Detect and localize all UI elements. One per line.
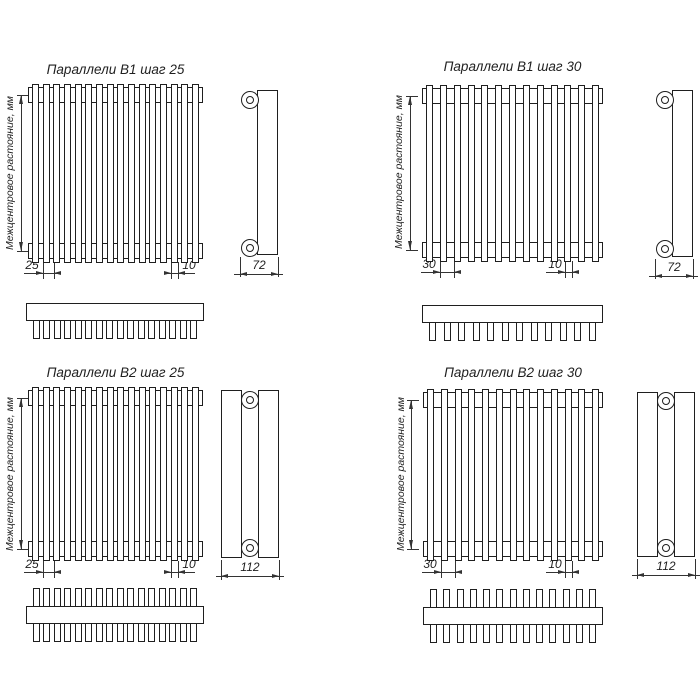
side-column <box>637 392 658 557</box>
tube-top-view <box>138 622 145 642</box>
tube-top-view <box>536 623 543 643</box>
tube-top-view <box>190 622 197 642</box>
collector-bar <box>26 606 204 624</box>
tube-top-view <box>148 588 155 608</box>
tube-top-view <box>496 623 503 643</box>
tube-top-view <box>429 321 436 341</box>
tube-top-view <box>574 321 581 341</box>
radiator-tube <box>578 85 585 262</box>
connection-port-icon <box>657 392 675 410</box>
radiator-tube <box>592 389 599 561</box>
depth-label: 112 <box>648 560 684 573</box>
radiator-tube <box>192 387 199 561</box>
tube-top-view <box>470 623 477 643</box>
radiator-top-view <box>26 606 204 624</box>
radiator-tube <box>510 389 517 561</box>
dim-arrow <box>637 573 644 577</box>
dim-arrow <box>409 540 413 549</box>
tube-top-view <box>106 319 113 339</box>
radiator-tube <box>496 389 503 561</box>
tube-top-view <box>180 319 187 339</box>
tube-top-view <box>54 319 61 339</box>
tube-top-view <box>536 589 543 609</box>
tube-top-view <box>589 623 596 643</box>
radiator-tube <box>468 389 475 561</box>
tube-top-view <box>516 321 523 341</box>
tube-top-view <box>127 319 134 339</box>
radiator-tube <box>117 387 124 561</box>
tube-top-view <box>75 319 82 339</box>
tube-top-view <box>576 623 583 643</box>
technical-drawing: Параллели B1 шаг 25 Межцентровое растоян… <box>0 0 700 700</box>
tube-top-view <box>33 319 40 339</box>
ext-line <box>565 561 566 578</box>
radiator-tube <box>481 85 488 262</box>
radiator-tube <box>160 387 167 561</box>
tube-top-view <box>487 321 494 341</box>
radiator-tube <box>551 389 558 561</box>
tube-top-view <box>117 622 124 642</box>
tube-top-view <box>148 319 155 339</box>
dim-arrow <box>455 570 462 574</box>
radiator-tube <box>117 84 124 263</box>
tube-top-view <box>159 588 166 608</box>
tube-top-view <box>64 319 71 339</box>
ext-line <box>695 559 696 579</box>
tube-top-view <box>117 588 124 608</box>
radiator-tube <box>32 84 39 263</box>
tube-top-view <box>117 319 124 339</box>
radiator-tube <box>564 85 571 262</box>
tube-top-view <box>85 622 92 642</box>
tube-top-view <box>64 622 71 642</box>
tube-top-view <box>483 623 490 643</box>
tube-top-view <box>169 622 176 642</box>
radiator-tube <box>537 389 544 561</box>
radiator-tube <box>427 389 434 561</box>
tube-top-view <box>430 623 437 643</box>
radiator-tube <box>53 84 60 263</box>
radiator-tube <box>468 85 475 262</box>
tube-top-view <box>96 622 103 642</box>
dim-arrow <box>688 573 695 577</box>
tube-top-view <box>549 589 556 609</box>
tube-top-view <box>75 622 82 642</box>
tube-top-view <box>496 589 503 609</box>
tube-top-view <box>502 321 509 341</box>
radiator-side-view <box>637 392 695 557</box>
tube-top-view <box>138 588 145 608</box>
radiator-tube <box>181 84 188 263</box>
radiator-tube <box>139 84 146 263</box>
center-distance-label: Межцентровое растояние, мм <box>393 394 409 554</box>
tube-top-view <box>159 622 166 642</box>
radiator-tube <box>509 85 516 262</box>
tube-top-view <box>180 588 187 608</box>
tube-top-view <box>96 319 103 339</box>
radiator-tube <box>64 84 71 263</box>
radiator-tube <box>537 85 544 262</box>
tube-top-view <box>33 622 40 642</box>
tube-top-view <box>33 588 40 608</box>
radiator-tube <box>565 389 572 561</box>
collector-bar <box>422 305 603 323</box>
tube-top-view <box>563 623 570 643</box>
tube-top-view <box>190 588 197 608</box>
tube-top-view <box>457 589 464 609</box>
tube-top-view <box>457 623 464 643</box>
radiator-tube <box>441 389 448 561</box>
radiator-tube <box>75 84 82 263</box>
tube-top-view <box>127 622 134 642</box>
radiator-tube <box>149 387 156 561</box>
radiator-tube <box>139 387 146 561</box>
tube-top-view <box>96 588 103 608</box>
tube-top-view <box>127 588 134 608</box>
radiator-tube <box>85 84 92 263</box>
tube-top-view <box>483 589 490 609</box>
radiator-tube <box>85 387 92 561</box>
tube-top-view <box>443 589 450 609</box>
radiator-tube <box>181 387 188 561</box>
tube-top-view <box>180 622 187 642</box>
connection-port-icon <box>241 391 259 409</box>
radiator-tube <box>128 84 135 263</box>
radiator-tube <box>43 387 50 561</box>
tube-top-view <box>510 589 517 609</box>
tube-top-view <box>523 623 530 643</box>
connection-port-icon <box>656 240 674 258</box>
tube-top-view <box>54 588 61 608</box>
radiator-tube <box>495 85 502 262</box>
radiator-tube <box>64 387 71 561</box>
tube-top-view <box>473 321 480 341</box>
radiator-tube <box>578 389 585 561</box>
tube-top-view <box>531 321 538 341</box>
radiator-tube <box>128 387 135 561</box>
tube-top-view <box>148 622 155 642</box>
collector-bar <box>26 303 204 321</box>
radiator-tube <box>96 84 103 263</box>
tube-top-view <box>563 589 570 609</box>
radiator-tube <box>192 84 199 263</box>
connection-port-icon <box>241 239 259 257</box>
tube-top-view <box>43 319 50 339</box>
dim-arrow <box>409 400 413 409</box>
radiator-tube <box>32 387 39 561</box>
tube-top-view <box>576 589 583 609</box>
tube-top-view <box>169 588 176 608</box>
tube-top-view <box>443 623 450 643</box>
tube-top-view <box>43 622 50 642</box>
tube-top-view <box>510 623 517 643</box>
radiator-tube <box>523 85 530 262</box>
ext-line <box>441 561 442 578</box>
radiator-tube <box>107 387 114 561</box>
tube-top-view <box>106 588 113 608</box>
tube-top-view <box>190 319 197 339</box>
radiator-tube <box>482 389 489 561</box>
tube-top-view <box>138 319 145 339</box>
tube-top-view <box>444 321 451 341</box>
tube-top-view <box>560 321 567 341</box>
radiator-tube <box>75 387 82 561</box>
tube-top-view <box>470 589 477 609</box>
tube-top-view <box>159 319 166 339</box>
dim-arrow <box>572 570 579 574</box>
radiator-tube <box>592 85 599 262</box>
radiator-tube <box>171 84 178 263</box>
side-column <box>674 392 695 557</box>
tube-top-view <box>43 588 50 608</box>
tube-top-view <box>169 319 176 339</box>
connection-port-icon <box>656 91 674 109</box>
collector-bar <box>423 607 603 625</box>
tube-top-view <box>549 623 556 643</box>
radiator-tube <box>53 387 60 561</box>
radiator-front-view <box>423 392 603 557</box>
radiator-tube <box>160 84 167 263</box>
connection-port-icon <box>657 539 675 557</box>
tube-top-view <box>545 321 552 341</box>
tube-top-view <box>85 588 92 608</box>
tube-top-view <box>106 622 113 642</box>
radiator-tube <box>440 85 447 262</box>
tube-top-view <box>75 588 82 608</box>
radiator-tube <box>523 389 530 561</box>
radiator-tube <box>551 85 558 262</box>
tube-top-view <box>589 321 596 341</box>
radiator-tube <box>107 84 114 263</box>
tube-top-view <box>85 319 92 339</box>
dim-line <box>411 400 412 549</box>
tube-top-view <box>589 589 596 609</box>
tube-top-view <box>54 622 61 642</box>
radiator-tube <box>454 85 461 262</box>
radiator-tube <box>149 84 156 263</box>
radiator-tube <box>43 84 50 263</box>
drawing-title: Параллели B2 шаг 30 <box>423 365 603 380</box>
radiator-tube <box>96 387 103 561</box>
radiator-tube <box>455 389 462 561</box>
tube-top-view <box>523 589 530 609</box>
tube-top-view <box>64 588 71 608</box>
radiator-top-view <box>422 305 603 323</box>
radiator-top-view <box>423 607 603 625</box>
radiator-top-view <box>26 303 204 321</box>
connection-port-icon <box>241 539 259 557</box>
tube-top-view <box>458 321 465 341</box>
connection-port-icon <box>241 91 259 109</box>
tube-top-view <box>430 589 437 609</box>
radiator-tube <box>426 85 433 262</box>
radiator-tube <box>171 387 178 561</box>
